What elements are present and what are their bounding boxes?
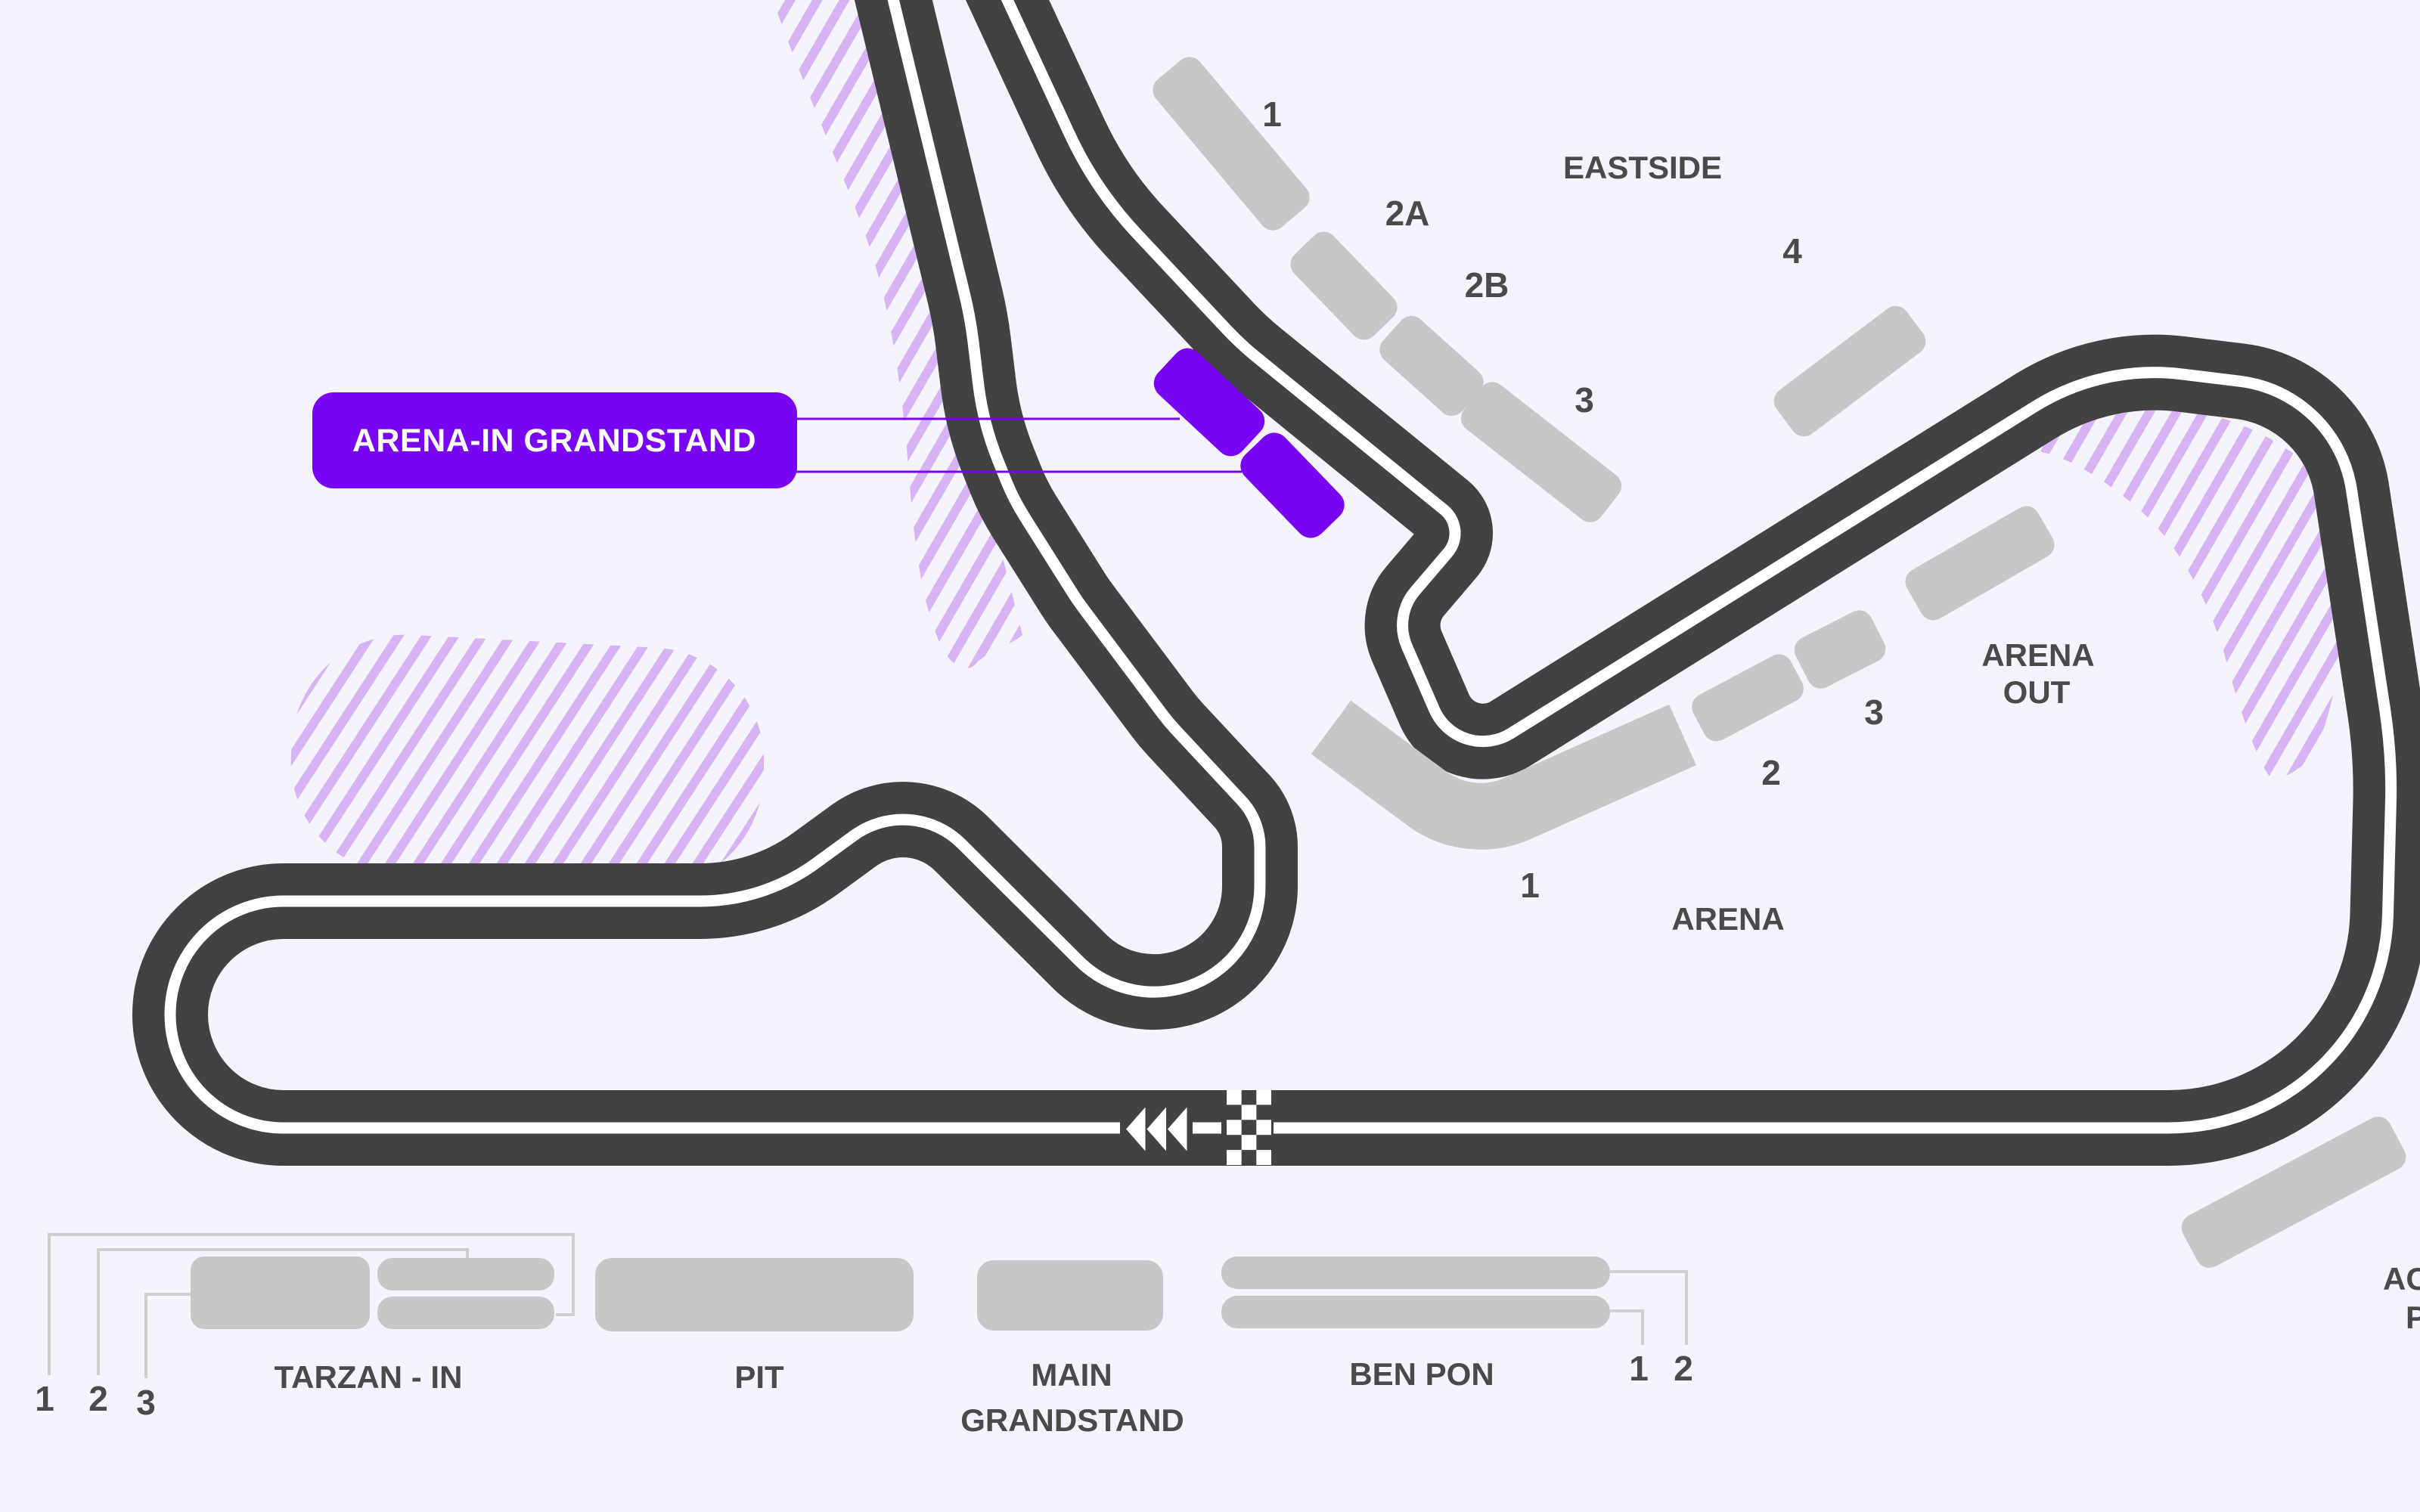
svg-text:1: 1: [1520, 866, 1540, 905]
svg-text:ARENA: ARENA: [1981, 637, 2094, 673]
svg-text:2A: 2A: [1385, 194, 1430, 233]
svg-text:1: 1: [1629, 1349, 1649, 1388]
svg-text:3: 3: [1575, 380, 1594, 420]
svg-text:PIT: PIT: [734, 1359, 784, 1395]
svg-text:2: 2: [1761, 753, 1781, 792]
svg-text:ARENA-IN GRANDSTAND: ARENA-IN GRANDSTAND: [352, 423, 756, 459]
svg-text:3: 3: [136, 1383, 156, 1422]
svg-text:4: 4: [1782, 231, 1802, 271]
svg-text:BEN PON: BEN PON: [1349, 1356, 1494, 1392]
svg-text:OUT: OUT: [2003, 674, 2071, 710]
svg-text:2: 2: [88, 1379, 108, 1418]
svg-text:ACCESS: ACCESS: [2383, 1261, 2420, 1297]
svg-text:TARZAN - IN: TARZAN - IN: [275, 1359, 463, 1395]
svg-text:PADDOCK: PADDOCK: [2406, 1300, 2420, 1335]
svg-text:1: 1: [1262, 94, 1282, 134]
svg-text:3: 3: [1864, 692, 1884, 732]
svg-text:1: 1: [35, 1379, 54, 1418]
svg-text:2B: 2B: [1465, 265, 1509, 305]
svg-text:2: 2: [1674, 1349, 1693, 1388]
svg-text:MAIN: MAIN: [1031, 1357, 1112, 1393]
svg-text:GRANDSTAND: GRANDSTAND: [960, 1402, 1184, 1438]
svg-text:EASTSIDE: EASTSIDE: [1563, 150, 1722, 185]
svg-text:ARENA: ARENA: [1671, 901, 1784, 937]
